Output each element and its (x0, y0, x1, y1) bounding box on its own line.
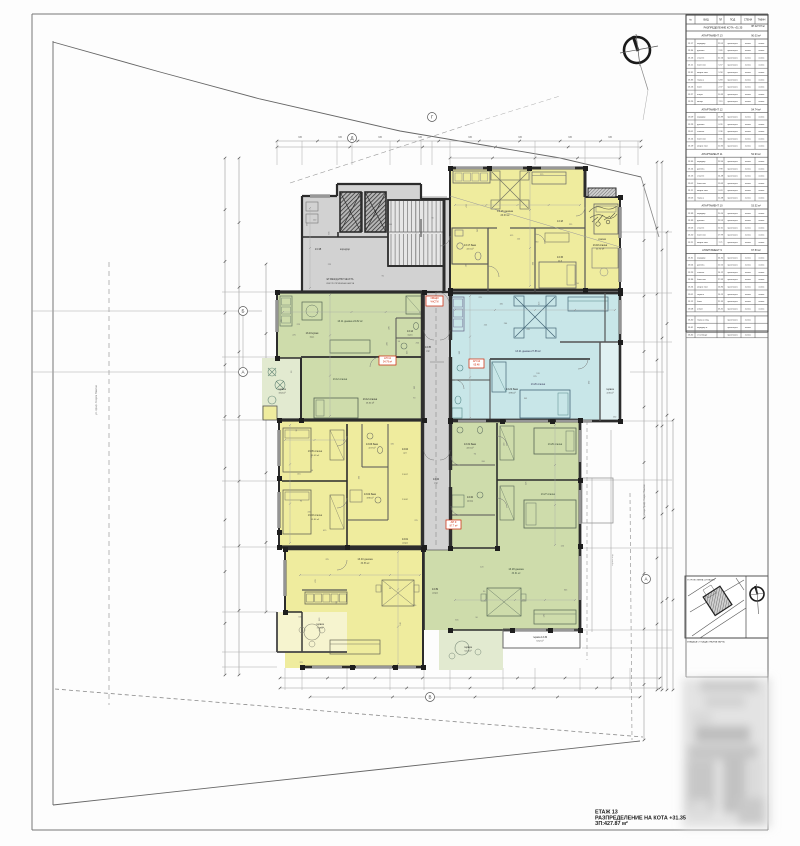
svg-text:13.12: 13.12 (688, 301, 694, 303)
svg-text:гранитогрес: гранитогрес (727, 242, 738, 244)
svg-text:13.18: 13.18 (557, 220, 564, 223)
svg-text:Б: Б (242, 309, 245, 314)
svg-text:13.34: 13.34 (433, 478, 440, 481)
svg-text:тераса: тераса (278, 388, 286, 391)
svg-text:латекс: латекс (758, 235, 764, 237)
svg-text:улица Проф. Георги Павлов: улица Проф. Георги Павлов (643, 484, 646, 516)
svg-text:13.13 кухня: 13.13 кухня (306, 332, 319, 335)
svg-text:килер: килер (467, 500, 474, 502)
svg-text:87.7 м²: 87.7 м² (450, 525, 458, 528)
svg-text:13.36: 13.36 (688, 279, 694, 281)
svg-text:13.39: 13.39 (432, 588, 439, 591)
svg-text:ЗП:427.87 м²: ЗП:427.87 м² (751, 25, 765, 28)
svg-text:13.18 спалня: 13.18 спалня (593, 244, 608, 247)
svg-text:16.15: 16.15 (718, 294, 724, 296)
svg-text:13.12 спалня: 13.12 спалня (333, 378, 348, 381)
svg-text:латекс: латекс (758, 257, 764, 259)
svg-text:гранитогрес: гранитогрес (727, 287, 738, 289)
svg-text:гранитогрес: гранитогрес (727, 294, 738, 296)
svg-text:гранитогрес: гранитогрес (727, 65, 738, 67)
svg-text:23.90: 23.90 (718, 161, 724, 163)
svg-text:10.33: 10.33 (718, 94, 724, 96)
svg-text:гранитогрес: гранитогрес (727, 272, 738, 274)
svg-text:13.29 спалня: 13.29 спалня (548, 443, 563, 446)
svg-text:54.79 м²: 54.79 м² (383, 361, 392, 364)
svg-text:ЕТ.МЕЖД.ИНСТ.ШАХТА: ЕТ.МЕЖД.ИНСТ.ШАХТА (327, 278, 354, 281)
svg-text:4.15 м²: 4.15 м² (466, 446, 473, 449)
svg-text:13.41: 13.41 (688, 327, 694, 329)
svg-text:гранитогрес: гранитогрес (727, 72, 738, 74)
svg-text:мокро пом: мокро пом (697, 72, 708, 74)
svg-text:стълбище: стълбище (697, 334, 708, 336)
svg-text:ВИД: ВИД (704, 19, 709, 22)
svg-text:гранитогрес: гранитогрес (727, 213, 738, 215)
svg-text:латекс: латекс (758, 131, 764, 133)
svg-text:гранитогрес: гранитогрес (727, 257, 738, 259)
svg-text:гранитогрес: гранитогрес (727, 138, 738, 140)
svg-text:латекс: латекс (745, 50, 751, 52)
svg-text:латекс: латекс (745, 220, 751, 222)
svg-text:коридор: коридор (697, 43, 706, 45)
svg-text:13.39: 13.39 (688, 213, 694, 215)
svg-text:тераса: тераса (606, 388, 614, 391)
svg-text:33.56 м²: 33.56 м² (361, 562, 370, 565)
svg-text:13.05 спалня: 13.05 спалня (308, 450, 323, 453)
svg-text:13.24: 13.24 (688, 287, 694, 289)
svg-text:ул. проф. Георги Павлов: ул. проф. Георги Павлов (94, 385, 98, 415)
svg-text:21.35: 21.35 (718, 301, 724, 303)
svg-text:13.02: 13.02 (688, 183, 694, 185)
svg-text:латекс: латекс (758, 87, 764, 89)
svg-text:13.27 спалня: 13.27 спалня (541, 493, 556, 496)
svg-text:латекс: латекс (745, 301, 751, 303)
svg-text:3.64 м²: 3.64 м² (278, 391, 285, 394)
svg-text:латекс: латекс (745, 294, 751, 296)
svg-text:13.31: 13.31 (688, 257, 694, 259)
svg-text:латекс: латекс (758, 124, 764, 126)
svg-text:спалня: спалня (598, 238, 607, 241)
svg-text:13.16: 13.16 (688, 57, 694, 59)
svg-text:гранитогрес: гранитогрес (727, 235, 738, 237)
svg-text:А: А (241, 370, 244, 375)
svg-text:гранитогрес: гранитогрес (727, 43, 738, 45)
svg-text:гранитогрес: гранитогрес (727, 279, 738, 281)
svg-text:АПАРТАМЕНТ 12: АПАРТАМЕНТ 12 (701, 107, 723, 111)
svg-text:52.93 м²: 52.93 м² (751, 153, 761, 156)
svg-text:21.89: 21.89 (718, 117, 724, 119)
svg-text:латекс: латекс (758, 168, 764, 170)
svg-text:латекс: латекс (758, 294, 764, 296)
svg-text:6.62 м²: 6.62 м² (536, 639, 543, 642)
svg-text:25.55: 25.55 (718, 43, 724, 45)
svg-text:латекс: латекс (745, 190, 751, 192)
svg-text:латекс: латекс (758, 101, 764, 103)
svg-text:гранитогрес: гранитогрес (727, 198, 738, 200)
svg-text:ПЛ: ПЛ (719, 19, 723, 22)
svg-text:латекс: латекс (758, 265, 764, 267)
svg-text:латекс: латекс (758, 183, 764, 185)
svg-text:дневна: дневна (697, 220, 705, 222)
svg-text:латекс: латекс (758, 301, 764, 303)
svg-text:гранитогрес: гранитогрес (727, 161, 738, 163)
svg-text:латекс: латекс (758, 287, 764, 289)
svg-text:гранитогрес: гранитогрес (727, 131, 738, 133)
svg-text:13.35: 13.35 (688, 161, 694, 163)
svg-text:13.13: 13.13 (688, 176, 694, 178)
svg-text:латекс: латекс (758, 43, 764, 45)
svg-text:13.09: 13.09 (688, 117, 694, 119)
svg-text:баня екв: баня екв (697, 183, 707, 185)
svg-text:латекс: латекс (745, 235, 751, 237)
svg-text:13.01: 13.01 (688, 294, 694, 296)
svg-text:латекс: латекс (745, 79, 751, 81)
svg-text:тераса общ: тераса общ (697, 320, 709, 322)
svg-text:13.21 дневна 27.86 м²: 13.21 дневна 27.86 м² (515, 350, 541, 353)
svg-text:латекс: латекс (745, 327, 751, 329)
svg-text:антре: антре (697, 94, 704, 96)
svg-text:13.34: 13.34 (688, 50, 694, 52)
svg-text:15.86 м²: 15.86 м² (311, 518, 320, 521)
svg-text:гранитогрес: гранитогрес (727, 168, 738, 170)
svg-text:АПАРТАМЕНТ 11: АПАРТАМЕНТ 11 (702, 152, 723, 156)
svg-text:13.16 дневна: 13.16 дневна (497, 209, 513, 213)
svg-text:13.04: 13.04 (402, 448, 409, 451)
svg-text:13.01: 13.01 (402, 538, 409, 541)
svg-text:12.35: 12.35 (718, 146, 724, 148)
svg-text:13.29: 13.29 (688, 124, 694, 126)
svg-text:латекс: латекс (745, 168, 751, 170)
svg-text:13.27: 13.27 (688, 94, 694, 96)
svg-text:баня: баня (697, 87, 703, 89)
svg-text:коридор: коридор (697, 161, 706, 163)
svg-text:латекс: латекс (758, 227, 764, 229)
svg-text:5.10 м²: 5.10 м² (464, 649, 471, 652)
svg-text:13.01: 13.01 (688, 131, 694, 133)
svg-text:латекс: латекс (758, 176, 764, 178)
svg-text:Д: Д (350, 136, 353, 141)
svg-text:24.32: 24.32 (718, 257, 724, 259)
svg-text:13.17: 13.17 (688, 43, 694, 45)
svg-text:13.23: 13.23 (688, 272, 694, 274)
svg-text:латекс: латекс (745, 65, 751, 67)
svg-text:РАЗПРЕДЕЛЕНИЕ КОТА +31.35: РАЗПРЕДЕЛЕНИЕ КОТА +31.35 (704, 26, 743, 30)
svg-text:23.53: 23.53 (718, 220, 724, 222)
svg-text:13.12 спалня: 13.12 спалня (363, 398, 378, 401)
svg-text:гранитогрес: гранитогрес (727, 146, 738, 148)
svg-text:латекс: латекс (758, 138, 764, 140)
svg-text:латекс: латекс (758, 57, 764, 59)
svg-text:13.42: 13.42 (688, 334, 694, 336)
svg-text:баня: баня (697, 301, 703, 303)
svg-text:латекс: латекс (745, 176, 751, 178)
svg-text:13.54 м²: 13.54 м² (366, 401, 375, 404)
svg-text:АПАРТАМЕНТ 13: АПАРТАМЕНТ 13 (701, 34, 723, 38)
svg-text:АП 9: АП 9 (451, 520, 457, 524)
svg-text:А: А (644, 577, 647, 582)
svg-text:антре: антре (402, 542, 409, 544)
svg-text:13.05: 13.05 (688, 227, 694, 229)
svg-text:13.02: 13.02 (402, 499, 408, 501)
svg-text:латекс: латекс (758, 220, 764, 222)
svg-text:13.35: 13.35 (425, 346, 432, 349)
svg-text:дневна: дневна (697, 168, 705, 170)
svg-text:латекс: латекс (745, 242, 751, 244)
svg-text:латекс: латекс (758, 146, 764, 148)
svg-text:13.39: 13.39 (688, 220, 694, 222)
svg-text:13.40 дневна: 13.40 дневна (357, 558, 373, 561)
svg-text:13.25: 13.25 (688, 101, 694, 103)
svg-text:13.11: 13.11 (688, 65, 694, 67)
svg-text:13.05: 13.05 (688, 198, 694, 200)
svg-text:латекс: латекс (758, 65, 764, 67)
svg-text:латекс: латекс (745, 72, 751, 74)
svg-text:латекс: латекс (758, 79, 764, 81)
svg-text:мокро пом: мокро пом (697, 146, 708, 148)
svg-text:дневна: дневна (697, 124, 705, 126)
svg-text:ЧАСТИ: ЧАСТИ (431, 301, 439, 304)
svg-text:4.72 м²: 4.72 м² (368, 446, 375, 449)
svg-text:13.26 спалня: 13.26 спалня (531, 383, 546, 386)
svg-text:13.02 баня: 13.02 баня (364, 493, 377, 496)
svg-text:баня екв: баня екв (697, 65, 707, 67)
svg-text:тераса: тераса (464, 646, 472, 649)
svg-text:спалня: спалня (697, 176, 705, 178)
svg-text:гранитогрес: гранитогрес (727, 265, 738, 267)
svg-text:13.32: 13.32 (467, 496, 474, 499)
svg-text:53.52 м²: 53.52 м² (751, 205, 761, 208)
svg-text:13.03 спалня: 13.03 спалня (308, 514, 323, 517)
svg-text:17.99: 17.99 (718, 235, 724, 237)
svg-text:54.74 м²: 54.74 м² (751, 108, 761, 111)
svg-text:АПАРТАМЕНТ 9: АПАРТАМЕНТ 9 (702, 248, 722, 252)
svg-text:коридор: коридор (340, 248, 350, 251)
svg-text:спалня: спалня (697, 131, 705, 133)
svg-text:27.63: 27.63 (718, 279, 724, 281)
svg-text:13.38: 13.38 (315, 247, 322, 251)
svg-text:гранитогрес: гранитогрес (727, 308, 738, 310)
svg-text:латекс: латекс (758, 242, 764, 244)
svg-text:13.06 баня: 13.06 баня (366, 443, 379, 446)
svg-text:УСТРОЙСТВЕНА СИТУАЦИЯ: УСТРОЙСТВЕНА СИТУАЦИЯ (687, 579, 715, 582)
svg-text:22.16: 22.16 (718, 57, 724, 59)
svg-text:латекс: латекс (745, 101, 751, 103)
svg-text:мокро пом: мокро пом (697, 242, 708, 244)
svg-text:13.31: 13.31 (688, 72, 694, 74)
svg-text:13.04: 13.04 (688, 265, 694, 267)
svg-text:20.10: 20.10 (718, 213, 724, 215)
svg-text:13.07: 13.07 (402, 474, 408, 476)
svg-text:12.48: 12.48 (718, 198, 724, 200)
svg-text:латекс: латекс (745, 138, 751, 140)
svg-text:26.41: 26.41 (718, 308, 724, 310)
svg-text:латекс: латекс (745, 213, 751, 215)
svg-text:3.90 м²: 3.90 м² (366, 496, 373, 499)
svg-text:23.63 м²: 23.63 м² (500, 214, 509, 217)
svg-text:4.35 м²: 4.35 м² (606, 391, 613, 394)
svg-text:латекс: латекс (745, 131, 751, 133)
svg-text:латекс: латекс (745, 183, 751, 185)
svg-text:В: В (428, 695, 431, 700)
svg-text:латекс: латекс (758, 272, 764, 274)
svg-text:латекс: латекс (758, 117, 764, 119)
svg-text:13.20: 13.20 (688, 235, 694, 237)
svg-text:латекс: латекс (745, 124, 751, 126)
svg-text:33.61 м²: 33.61 м² (512, 572, 521, 575)
svg-text:баня: баня (408, 334, 414, 336)
svg-text:гранитогрес: гранитогрес (727, 183, 738, 185)
svg-text:латекс: латекс (745, 94, 751, 96)
svg-text:гранитогрес: гранитогрес (727, 57, 738, 59)
svg-text:антре: антре (697, 308, 704, 310)
svg-text:коридор: коридор (697, 213, 706, 215)
svg-text:коридор: коридор (697, 117, 706, 119)
svg-text:баня екв: баня екв (697, 138, 707, 140)
svg-text:латекс: латекс (745, 227, 751, 229)
svg-text:гранитогрес: гранитогрес (727, 87, 738, 89)
svg-text:7.43 м²: 7.43 м² (316, 626, 323, 629)
svg-text:тераса 13.30: тераса 13.30 (533, 636, 548, 639)
svg-text:спалня: спалня (697, 272, 705, 274)
svg-text:№: № (689, 19, 692, 22)
svg-text:тераса под: тераса под (612, 554, 614, 566)
svg-text:латекс: латекс (758, 161, 764, 163)
svg-text:67.53 м²: 67.53 м² (751, 249, 761, 252)
svg-text:гранитогрес: гранитогрес (727, 220, 738, 222)
svg-text:ЗП:427.87 м²: ЗП:427.87 м² (595, 821, 628, 827)
svg-text:латекс: латекс (745, 43, 751, 45)
svg-text:АП 11: АП 11 (384, 356, 392, 360)
svg-text:ант: ант (403, 452, 406, 454)
svg-text:латекс: латекс (745, 57, 751, 59)
svg-text:65.48: 65.48 (474, 364, 481, 367)
svg-text:гранитогрес: гранитогрес (727, 176, 738, 178)
svg-text:13.11: 13.11 (688, 190, 694, 192)
svg-text:гранитогрес: гранитогрес (727, 320, 738, 322)
svg-text:латекс: латекс (745, 308, 751, 310)
svg-text:13.14: 13.14 (688, 168, 694, 170)
svg-text:латекс: латекс (745, 272, 751, 274)
svg-text:гранитогрес: гранитогрес (727, 50, 738, 52)
svg-text:14.12: 14.12 (718, 272, 724, 274)
svg-text:латекс: латекс (745, 334, 751, 336)
svg-text:латекс: латекс (745, 146, 751, 148)
svg-text:латекс: латекс (758, 72, 764, 74)
svg-text:13.22 баня: 13.22 баня (506, 388, 519, 391)
svg-text:13.08: 13.08 (688, 308, 694, 310)
svg-text:11.70 м²: 11.70 м² (596, 247, 604, 250)
svg-text:латекс: латекс (758, 94, 764, 96)
svg-text:13.15: 13.15 (557, 256, 564, 259)
svg-text:13.14: 13.14 (407, 330, 414, 333)
svg-text:латекс: латекс (745, 161, 751, 163)
svg-text:13.40: 13.40 (688, 320, 694, 322)
svg-text:антре: антре (432, 592, 439, 594)
svg-text:латекс: латекс (758, 50, 764, 52)
svg-text:баня екв: баня екв (697, 279, 707, 281)
svg-text:тераса: тераса (697, 294, 705, 296)
svg-text:латекс: латекс (745, 287, 751, 289)
svg-text:латекс: латекс (745, 117, 751, 119)
svg-text:10.12: 10.12 (718, 265, 724, 267)
svg-text:латекс: латекс (758, 279, 764, 281)
svg-text:13.14: 13.14 (688, 138, 694, 140)
svg-text:латекс: латекс (745, 279, 751, 281)
svg-text:13.63: 13.63 (718, 183, 724, 185)
svg-text:гранитогрес: гранитогрес (727, 227, 738, 229)
svg-text:гранитогрес: гранитогрес (727, 334, 738, 336)
svg-text:ПОД: ПОД (730, 19, 736, 22)
svg-text:гранитогрес: гранитогрес (727, 190, 738, 192)
svg-text:латекс: латекс (758, 308, 764, 310)
svg-text:ТАВАН: ТАВАН (758, 19, 766, 22)
svg-text:АПАРТАМЕНТ 10: АПАРТАМЕНТ 10 (701, 204, 723, 208)
svg-text:дневна: дневна (697, 265, 705, 267)
svg-text:13.31 баня: 13.31 баня (464, 443, 477, 446)
svg-text:СВЕТЛОПРИЕМНА ШАХТА: СВЕТЛОПРИЕМНА ШАХТА (326, 282, 355, 285)
svg-text:латекс: латекс (745, 320, 751, 322)
svg-text:спалня: спалня (697, 227, 705, 229)
svg-text:гранитогрес: гранитогрес (727, 101, 738, 103)
svg-text:килер: килер (697, 101, 704, 103)
svg-text:13.19: 13.19 (688, 146, 694, 148)
svg-text:баня екв: баня екв (697, 235, 707, 237)
svg-text:4.15 м²: 4.15 м² (466, 247, 473, 250)
svg-text:латекс: латекс (758, 213, 764, 215)
svg-text:гранитогрес: гранитогрес (727, 79, 738, 81)
svg-text:дневна: дневна (697, 50, 705, 52)
svg-text:АП 12: АП 12 (473, 359, 481, 363)
svg-text:90.03 м²: 90.03 м² (751, 35, 761, 38)
svg-text:14.48: 14.48 (718, 176, 724, 178)
svg-text:13.16: 13.16 (688, 87, 694, 89)
svg-text:латекс: латекс (745, 198, 751, 200)
svg-text:гранитогрес: гранитогрес (727, 301, 738, 303)
svg-text:13.11 дневна 24.82 м²: 13.11 дневна 24.82 м² (337, 320, 362, 323)
svg-text:гранитогрес: гранитогрес (727, 117, 738, 119)
svg-text:латекс: латекс (745, 265, 751, 267)
svg-text:14.84: 14.84 (718, 287, 724, 289)
svg-text:13.17 баня: 13.17 баня (464, 244, 477, 247)
svg-text:спалня: спалня (697, 57, 705, 59)
svg-text:тераса: тераса (316, 623, 324, 626)
svg-text:мокро пом: мокро пом (697, 287, 708, 289)
svg-text:тераса: тераса (697, 198, 705, 200)
svg-text:ИЗВАДКА ОТ КАДАСТРАЛНА КАРТА: ИЗВАДКА ОТ КАДАСТРАЛНА КАРТА (687, 641, 725, 644)
svg-text:гранитогрес: гранитогрес (727, 327, 738, 329)
svg-text:коридор и: коридор и (697, 327, 708, 329)
svg-text:латекс: латекс (745, 87, 751, 89)
svg-text:гранитогрес: гранитогрес (727, 94, 738, 96)
svg-text:ОБЩИ: ОБЩИ (430, 296, 438, 300)
svg-text:латекс: латекс (758, 190, 764, 192)
svg-text:мокро пом: мокро пом (697, 190, 708, 192)
svg-text:латекс: латекс (745, 257, 751, 259)
svg-text:гранитогрес: гранитогрес (727, 124, 738, 126)
svg-text:13.28 дневна: 13.28 дневна (508, 568, 524, 571)
svg-text:СТЕНИ: СТЕНИ (744, 19, 752, 22)
svg-text:коридор: коридор (697, 257, 706, 259)
svg-text:13.35: 13.35 (688, 79, 694, 81)
svg-text:3.95 м²: 3.95 м² (508, 391, 515, 394)
svg-text:13.21: 13.21 (688, 242, 694, 244)
svg-text:тераса: тераса (697, 79, 705, 81)
svg-text:латекс: латекс (758, 198, 764, 200)
